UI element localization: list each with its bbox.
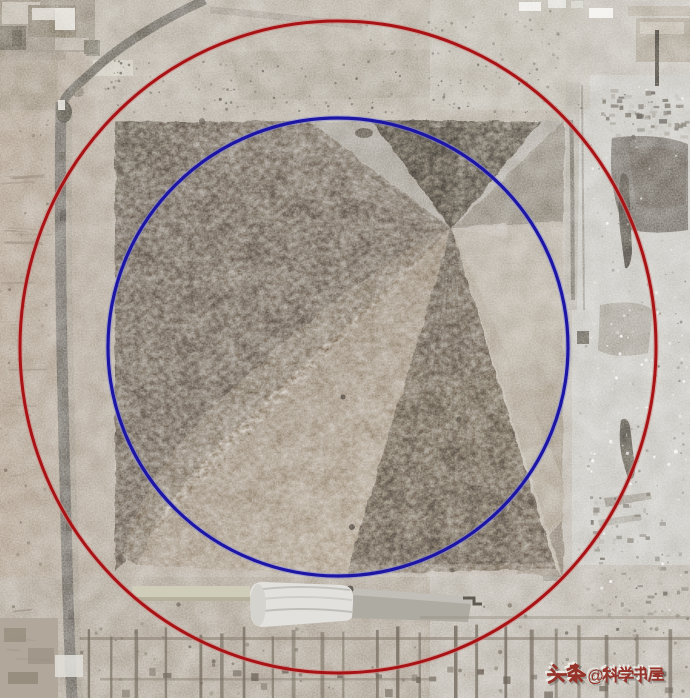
svg-text:@: @ bbox=[587, 668, 604, 686]
